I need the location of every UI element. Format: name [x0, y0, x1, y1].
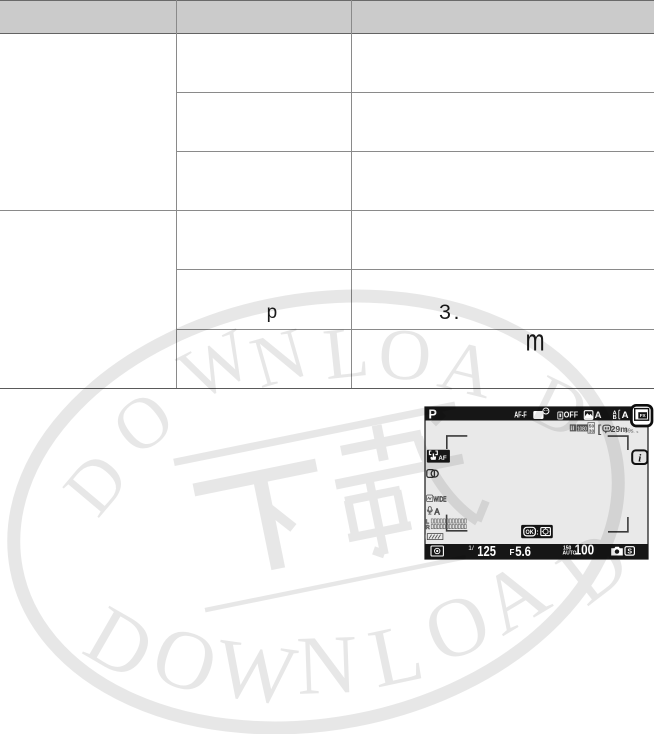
- svg-text:N: N: [295, 618, 359, 713]
- svg-text:A: A: [432, 323, 503, 414]
- svg-text:D: D: [48, 437, 144, 529]
- svg-text:D: D: [518, 359, 601, 455]
- svg-text:W: W: [210, 621, 302, 724]
- svg-text:O: O: [377, 313, 434, 397]
- svg-text:O: O: [97, 374, 188, 470]
- svg-text:D: D: [541, 512, 646, 623]
- svg-text:L: L: [320, 310, 373, 395]
